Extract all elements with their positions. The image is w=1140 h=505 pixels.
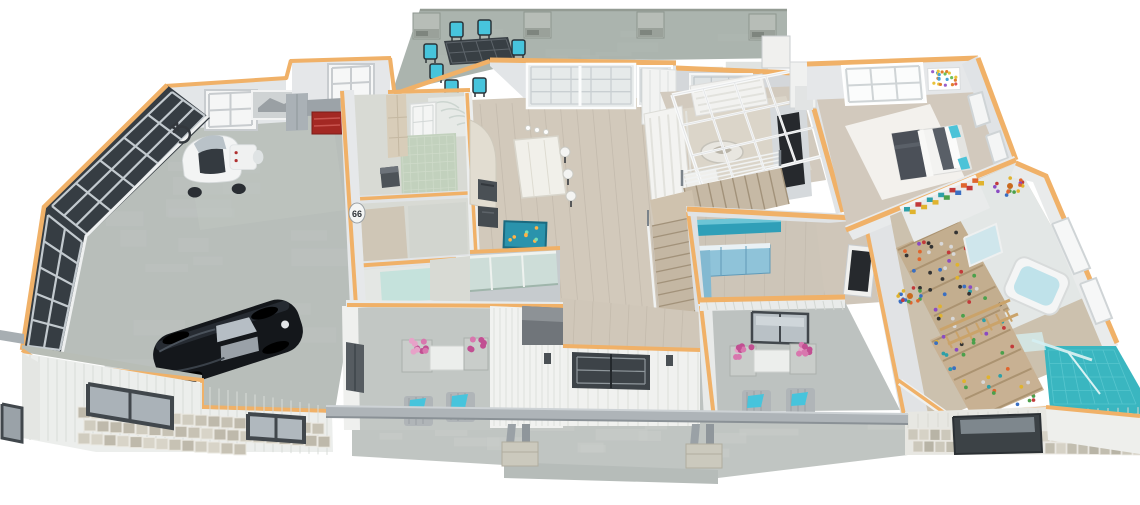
svg-text:66: 66	[352, 209, 362, 219]
